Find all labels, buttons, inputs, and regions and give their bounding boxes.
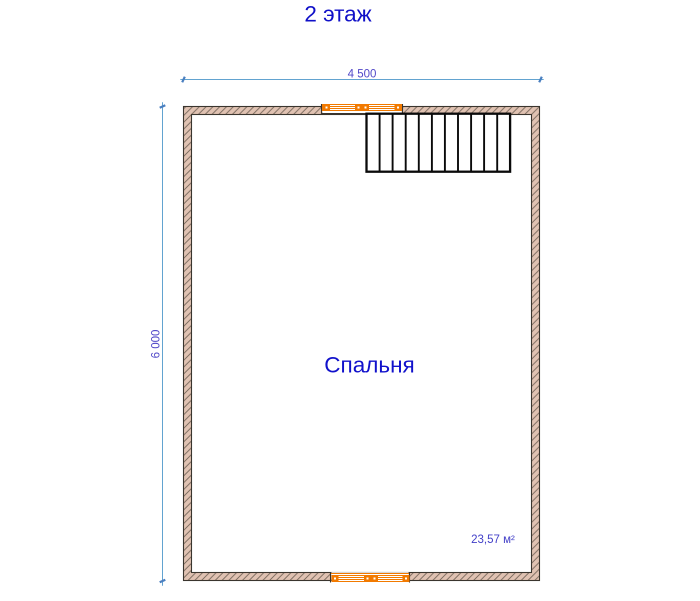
- svg-text:4 500: 4 500: [348, 69, 377, 81]
- svg-text:23,57 м²: 23,57 м²: [471, 534, 515, 546]
- svg-text:Спальня: Спальня: [324, 352, 414, 377]
- svg-text:2 этаж: 2 этаж: [304, 1, 371, 26]
- svg-text:6 000: 6 000: [151, 330, 163, 359]
